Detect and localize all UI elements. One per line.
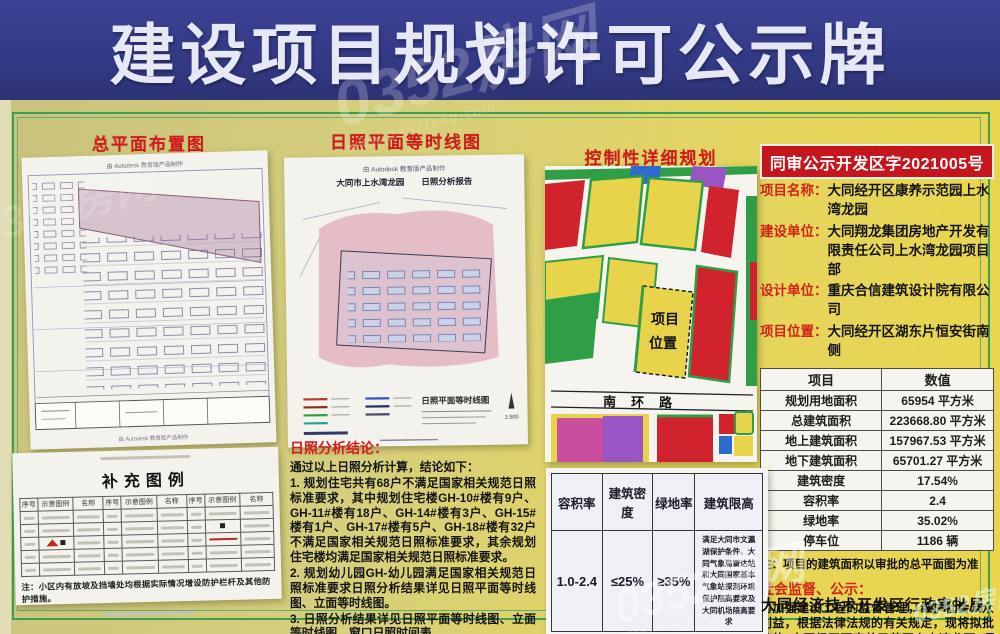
table-header-row: 项目 数值 [761, 369, 994, 391]
metric-value: 223668.80 平方米 [882, 411, 994, 431]
metric-label: 容积率 [761, 491, 882, 511]
zone-red-small [719, 414, 735, 434]
legend-col: 序号 [187, 494, 205, 507]
limits-value-row: 1.0-2.4 ≤25% ≥35% 满足大同市文瀛湖保护条件、大同气象局雷达站和… [552, 531, 763, 632]
col-header-item: 项目 [761, 369, 882, 391]
zone-purple-block-bottom [603, 416, 643, 462]
issuing-authority: 大同经济技术开发区行政审批局 [600, 594, 985, 615]
site-plan-sheet: 由 Autodesk 教育版产品制作 由 Autodesk 教育版产品制作 [21, 150, 276, 450]
black-square-icon [220, 523, 225, 528]
table-row: 地下建筑面积65701.27 平方米 [761, 451, 994, 471]
sunshine-credit: 由 Autodesk 教育版产品制作 [363, 163, 446, 173]
sunshine-conclusion: 日照分析结论： 通过以上日照分析计算，结论如下： 1. 规划住宅共有68户不满足… [290, 438, 536, 634]
zone-magenta-block [557, 418, 603, 462]
legend-col: 序号 [103, 496, 121, 509]
table-row: 地上建筑面积157967.53 平方米 [761, 431, 994, 451]
table-row: 规划用地面积65954 平方米 [761, 391, 994, 411]
limits-density-value: ≤25% [602, 531, 653, 632]
site-plan-credit-bottom: 由 Autodesk 教育版产品制作 [118, 433, 189, 443]
metric-label: 建筑密度 [761, 471, 882, 491]
field-value: 大同经开区湖东片恒安街南侧 [828, 323, 995, 361]
limits-header-row: 容积率 建筑密度 绿地率 建筑限高 [552, 474, 763, 531]
conclusion-line: 通过以上日照分析计算，结论如下： [290, 460, 536, 475]
header-band: 建设项目规划许可公示牌 [0, 0, 1000, 100]
metric-label: 规划用地面积 [761, 391, 882, 411]
legend-triangle-cell [38, 536, 74, 550]
metric-value: 2.4 [882, 491, 994, 511]
metric-value: 17.54% [882, 471, 994, 491]
limits-col-green: 绿地率 [653, 474, 695, 531]
site-plan-titleblock [35, 396, 270, 429]
site-plan-buildings [82, 232, 267, 390]
project-marker-line1: 项目 [651, 311, 679, 327]
field-label: 项目名称： [760, 182, 828, 220]
conclusion-title: 日照分析结论： [290, 438, 536, 458]
limits-green-value: ≥35% [653, 531, 695, 632]
metric-value: 1186 辆 [882, 531, 994, 551]
legend-col: 示意图例 [204, 493, 240, 507]
table-row: 总建筑面积223668.80 平方米 [761, 411, 994, 431]
project-location-block [635, 286, 693, 378]
sunshine-drawing: 由 Autodesk 教育版产品制作 大同市上水湾龙园 日照分析报告 [284, 154, 528, 447]
legend-redline-cell [205, 532, 241, 546]
legend-col: 示意图例 [121, 495, 157, 509]
red-line-icon [209, 538, 237, 541]
metric-label: 地上建筑面积 [761, 431, 882, 451]
zone-yellow-small [735, 412, 753, 434]
sunshine-title: 日照平面等时线图 [286, 128, 526, 153]
limits-col-far: 容积率 [552, 474, 603, 531]
field-label: 项目位置： [760, 323, 828, 361]
site-plan-drawing: 由 Autodesk 教育版产品制作 由 Autodesk 教育版产品制作 [21, 150, 276, 450]
black-dot-icon [61, 540, 66, 545]
zone-red-block-bottom [657, 416, 713, 462]
sunshine-caption: 日照平面等时线图 [421, 395, 489, 406]
metric-label: 总建筑面积 [761, 411, 882, 431]
legend-table: 序号 示意图例 名称 序号 示意图例 名称 序号 示意图例 名称 [19, 492, 275, 577]
table-row: 建筑密度17.54% [761, 471, 994, 491]
north-arrow-icon: 1:500 [504, 392, 518, 420]
zoning-map: 恒安街 项目 位置 南环路 [545, 166, 757, 462]
metric-value: 65701.27 平方米 [882, 451, 994, 471]
zone-blue-small [719, 436, 732, 454]
limits-far-value: 1.0-2.4 [552, 531, 603, 632]
table-row: 绿地率35.02% [761, 511, 994, 531]
limits-col-height: 建筑限高 [695, 474, 763, 531]
col-header-value: 数值 [882, 369, 994, 391]
legend-black-square-cell [205, 519, 241, 533]
legend-col: 名称 [240, 492, 273, 506]
conclusion-line: 1. 规划住宅共有68户不满足国家相关规范日照标准要求，其中规划住宅楼GH-10… [290, 476, 536, 565]
conclusion-line: 3. 日照分析结果详见日照平面等时线图、立面等时线图、窗口日照时间表。 [290, 612, 536, 634]
metric-value: 157967.53 平方米 [882, 431, 994, 451]
sunshine-scale: 1:500 [505, 414, 519, 420]
area-note: 注：项目的建筑面积以审批的总平面图为准 [760, 556, 994, 572]
table-row: 停车位1186 辆 [761, 531, 994, 551]
metric-value: 35.02% [882, 511, 994, 531]
field-location: 项目位置： 大同经开区湖东片恒安街南侧 [760, 323, 994, 361]
zoning-sheet: 恒安街 项目 位置 南环路 [545, 166, 757, 462]
notice-board-photo: 建设项目规划许可公示牌 总平面布置图 日照平面等时线图 控制性详细规划 [0, 0, 1000, 634]
legend-top-smudge [100, 455, 190, 460]
legend-col: 名称 [73, 497, 104, 511]
sunshine-sheet: 由 Autodesk 教育版产品制作 大同市上水湾龙园 日照分析报告 [284, 154, 528, 447]
red-triangle-icon [47, 539, 59, 546]
limits-height-value: 满足大同市文瀛湖保护条件、大同气象局雷达站和大同国家基本气象站探测环境保护限高要… [695, 531, 763, 632]
table-row: 容积率2.4 [761, 491, 994, 511]
field-value: 大同翔龙集团房地产开发有限责任公司上水湾龙园项目部 [828, 223, 995, 280]
conclusion-line: 2. 规划幼儿园GH-幼儿园满足国家相关规范日照标准要求日照分析结果详见日照平面… [290, 566, 536, 611]
zone-yellow-block-2 [641, 178, 703, 250]
metric-label: 绿地率 [761, 511, 882, 531]
site-plan-credit: 由 Autodesk 教育版产品制作 [106, 160, 183, 170]
legend-col: 序号 [20, 498, 38, 511]
legend-sheet: 补充图例 序号 示意图例 名称 序号 示意图例 名称 序号 示意图例 名称 [12, 447, 282, 605]
zone-red-block-3 [689, 266, 737, 382]
zone-yellow-block-1 [583, 176, 643, 248]
field-builder: 建设单位： 大同翔龙集团房地产开发有限责任公司上水湾龙园项目部 [760, 223, 994, 280]
project-metrics-table: 项目 数值 规划用地面积65954 平方米 总建筑面积223668.80 平方米… [760, 368, 994, 551]
legend-col: 名称 [156, 495, 187, 509]
legend-title: 补充图例 [19, 464, 274, 494]
notice-board: 总平面布置图 日照平面等时线图 控制性详细规划 由 Autodesk 教育版产品… [0, 100, 1000, 634]
board-edge [0, 100, 11, 634]
field-label: 设计单位： [760, 282, 828, 320]
project-marker-line2: 位置 [649, 335, 677, 351]
sunshine-buildings [348, 267, 483, 343]
metric-label: 地下建筑面积 [761, 451, 882, 471]
zone-yellow-small-2 [734, 436, 753, 456]
metric-label: 停车位 [761, 531, 882, 551]
metric-value: 65954 平方米 [882, 391, 994, 411]
field-value: 重庆合信建筑设计院有限公司 [828, 282, 995, 320]
page-title: 建设项目规划许可公示牌 [110, 2, 891, 98]
field-value: 大同经开区康养示范园上水湾龙园 [828, 182, 995, 220]
street-nanhuan-label: 南环路 [603, 394, 687, 410]
limits-col-density: 建筑密度 [602, 474, 653, 531]
sunshine-legend [303, 398, 411, 434]
approval-info-column: 同审公示开发区字2021005号 项目名称： 大同经开区康养示范园上水湾龙园 建… [760, 144, 994, 634]
field-label: 建设单位： [760, 223, 828, 280]
sunshine-subtitle: 大同市上水湾龙园 日照分析报告 [336, 176, 473, 188]
field-designer: 设计单位： 重庆合信建筑设计院有限公司 [760, 282, 994, 320]
field-project-name: 项目名称： 大同经开区康养示范园上水湾龙园 [760, 182, 994, 220]
document-number-banner: 同审公示开发区字2021005号 [760, 144, 994, 179]
zone-green-block [545, 292, 599, 364]
legend-col: 示意图例 [37, 497, 73, 511]
